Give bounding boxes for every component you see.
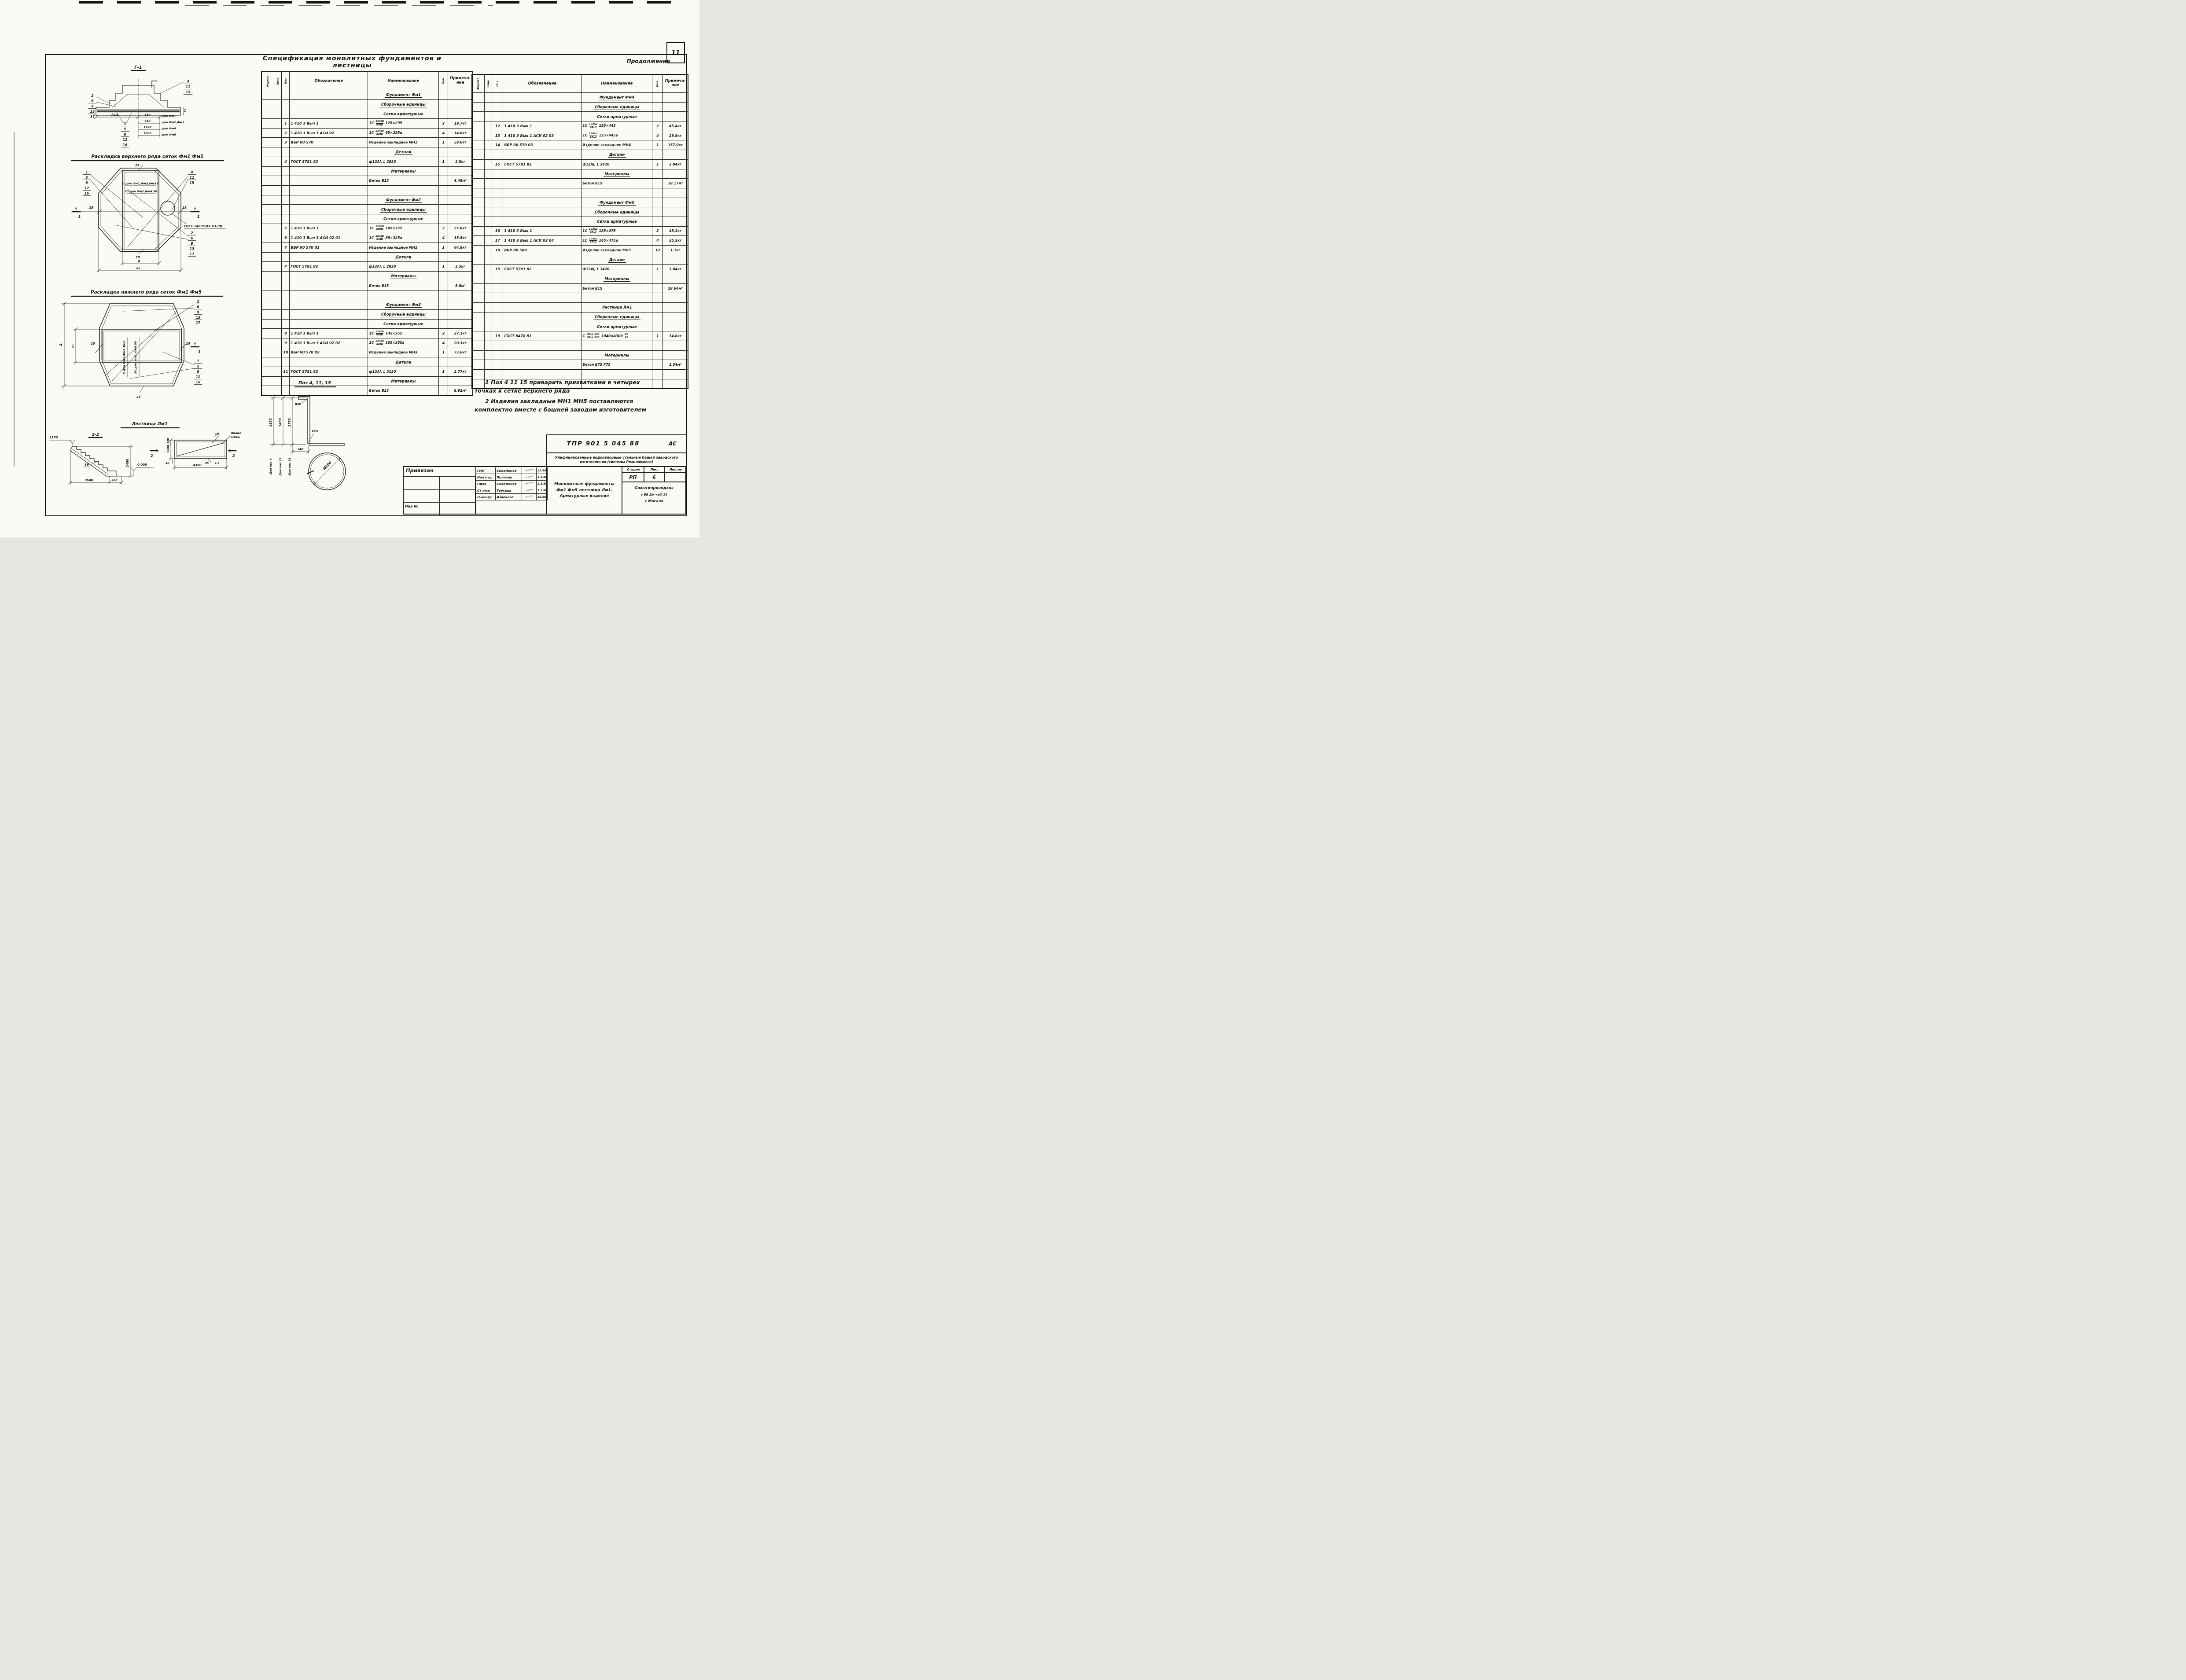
spec-cell <box>652 112 663 121</box>
spec-cell <box>472 274 484 284</box>
spec-cell <box>439 300 448 310</box>
spec-cell <box>484 265 492 274</box>
spec-cell <box>484 169 492 179</box>
bar-length-for: Для поз 15 <box>288 457 291 476</box>
spec-cell <box>274 329 282 338</box>
col-header-zona: Зона <box>484 74 492 93</box>
spec-cell <box>282 185 290 195</box>
signature-row: Нач отд Поляков 2.2.88 <box>476 474 548 481</box>
drawing-line <box>131 467 136 471</box>
spec-cell <box>261 205 274 214</box>
spec-cell <box>652 93 663 103</box>
dim-bottom: 25 <box>136 256 140 259</box>
spec-cell <box>484 350 492 360</box>
drawing-title: Раскладка нижнего ряда сеток Фм1 Фм5 <box>91 290 202 295</box>
sig-date: 1.2.88 <box>537 487 548 494</box>
bottom-mesh-drawing: Раскладка нижнего ряда сеток Фм1 Фм5 269… <box>53 287 238 419</box>
bar-length: 1750 <box>288 418 291 427</box>
spec-cell: 4 <box>652 236 663 246</box>
spec-cell <box>290 90 368 100</box>
spec-cell <box>274 300 282 310</box>
spec-cell <box>261 99 274 109</box>
spec-cell <box>274 243 282 253</box>
col-header-naimenovanie: Наименование <box>368 72 439 90</box>
sheets-label: Листов <box>665 468 687 471</box>
fraction: 12АШ6АШ <box>589 132 597 139</box>
spec-cell: 1 <box>652 159 663 169</box>
spec-cell <box>261 262 274 272</box>
spec-cell: Сборочные единицы <box>581 102 652 112</box>
bar-length: 1150 <box>269 418 272 427</box>
dim-plan-width: 4390 <box>193 463 202 467</box>
spec-row: Бетон В155.8м³ <box>261 281 473 290</box>
spec-cell <box>439 272 448 281</box>
spec-cell: ф12АI, L 2820 <box>368 262 439 272</box>
spec-cell <box>439 386 448 396</box>
revision-grid <box>403 476 475 515</box>
dim-a: а <box>138 259 140 263</box>
spec-cell <box>503 283 581 293</box>
callout-stack-left: 2691317 <box>88 94 96 119</box>
spec-cell <box>663 312 688 322</box>
spec-cell <box>484 312 492 322</box>
spec-section-row: Материалы <box>472 169 688 179</box>
spec-cell <box>261 281 274 290</box>
dim-left: 25 <box>91 342 95 346</box>
fraction: 12АШ6АШ <box>375 225 384 232</box>
spec-row: 131 410 3 Вып 1 АСИ 02 031С 12АШ6АШ 125×… <box>472 131 688 140</box>
spec-cell <box>663 150 688 160</box>
col-header-label: Поз <box>496 81 499 87</box>
spec-cell <box>484 236 492 246</box>
spec-cell: 2.5кг <box>448 262 473 272</box>
spec-cell <box>503 198 581 207</box>
spec-cell <box>290 357 368 367</box>
spec-cell <box>290 309 368 319</box>
spec-header: ФорматЗонаПозОбозначениеНаименованиеКолП… <box>472 74 688 93</box>
spec-cell <box>503 341 581 350</box>
section-title: Лестница Лм1 <box>600 305 633 310</box>
spec-cell <box>439 309 448 319</box>
drawing-line <box>458 477 458 515</box>
spec-cell <box>663 188 688 198</box>
spec-cell: 1 <box>652 265 663 274</box>
spec-row: Бетон В154.48м³ <box>261 176 473 186</box>
spec-cell <box>261 90 274 100</box>
col-header-zona: Зона <box>274 72 282 90</box>
sig-date: 12.88 <box>537 494 548 500</box>
spec-cell <box>290 195 368 205</box>
spec-cell <box>368 290 439 300</box>
spec-cell <box>448 166 473 176</box>
spec-cell <box>274 290 282 300</box>
spec-row: 121 410 3 Вып 11С 12АШ6АШ 185×445245.4кг <box>472 121 688 131</box>
fraction-den: 6АШ <box>589 240 597 243</box>
doc-number-cell: ТПР 901 5 045 88 АС <box>547 434 686 453</box>
drawing-line <box>526 469 533 471</box>
spec-cell: Детали <box>368 147 439 157</box>
spec-cell <box>274 272 282 281</box>
spec-cell <box>652 360 663 370</box>
spec-cell <box>274 348 282 357</box>
spec-cell: 15.5кг <box>448 233 473 243</box>
spec-cell: 1 410 3 Вып 1 АСИ 02 01 <box>290 233 368 243</box>
callout-number: 8 <box>124 132 126 136</box>
spec-cell <box>484 341 492 350</box>
fold-line-label-1: Линия <box>230 431 241 435</box>
dim-top: 25 <box>135 164 140 167</box>
spec-row: 61 410 3 Вып 1 АСИ 02 011С 12АШ6АШ 85×32… <box>261 233 473 243</box>
spec-cell: 1 410 3 Вып 1 <box>290 329 368 338</box>
spec-cell <box>663 350 688 360</box>
spec-section-row: Сборочные единицы <box>261 309 473 319</box>
spec-cell: 1 410 3 Вып 1 <box>290 119 368 129</box>
spec-cell <box>274 338 282 348</box>
section-title: Сетки арматурные <box>382 322 425 326</box>
spec-cell: 1 410 3 Вып 1 <box>503 226 581 236</box>
spec-cell <box>261 367 274 376</box>
fraction-den: 6АШ <box>589 136 597 139</box>
mesh-annotation: 0 для Фм1,Фм3,Фм5 0 <box>122 182 159 185</box>
spec-cell: Фундамент Фм2 <box>368 195 439 205</box>
spec-cell <box>503 112 581 121</box>
col-header-poz: Поз <box>282 72 290 90</box>
fraction-den: 6АШ <box>376 133 383 136</box>
spec-cell <box>503 350 581 360</box>
spec-cell <box>448 205 473 214</box>
signature-scribble <box>522 494 537 500</box>
spec-cell <box>439 185 448 195</box>
callout-stack-bottom: 1581216 <box>121 122 129 147</box>
fold-line-label-2: сгиба <box>231 435 240 439</box>
spec-cell <box>503 217 581 226</box>
spec-cell: Сборочные единицы <box>581 312 652 322</box>
spec-cell: 2 <box>439 224 448 233</box>
spec-cell <box>472 217 484 226</box>
sig-name: Трусова <box>496 487 522 494</box>
spec-row: 81 410 3 Вып 11С 12АШ6АШ 145×355227.1кг <box>261 329 473 338</box>
spec-section-row: Материалы <box>261 166 473 176</box>
sheet-label: Лист <box>644 468 665 471</box>
spec-cell <box>439 376 448 386</box>
spec-cell: Детали <box>368 252 439 262</box>
callout-number: 15 <box>186 90 190 94</box>
sig-date: 2.2.88 <box>537 481 548 487</box>
spec-cell <box>290 109 368 119</box>
spec-cell <box>652 293 663 303</box>
sig-name: Извекова <box>496 494 522 500</box>
spec-cell: 1 410 3 Вып 1 <box>503 121 581 131</box>
spec-cell <box>448 214 473 224</box>
spec-cell <box>439 252 448 262</box>
spec-row: 4ГОСТ 5781 82ф12АI, L 282012.5кг <box>261 262 473 272</box>
spec-cell: ГОСТ 5781 82 <box>290 157 368 166</box>
spec-cell: 3 <box>282 138 290 147</box>
spec-cell <box>448 290 473 300</box>
spec-table-left: ФорматЗонаПозОбозначениеНаименованиеКолП… <box>261 71 473 396</box>
fraction-den: 6АШ <box>376 238 383 241</box>
spec-cell: ВБР 00 570 02 <box>290 348 368 357</box>
spec-section-row: Сборочные единицы <box>261 205 473 214</box>
spec-cell: 1 <box>439 157 448 166</box>
spec-cell <box>503 360 581 370</box>
col-header-label: Зона <box>487 80 490 88</box>
spec-cell <box>282 214 290 224</box>
drawing-line <box>525 468 533 473</box>
spec-cell <box>484 102 492 112</box>
spec-section-row: Детали <box>472 255 688 265</box>
spec-cell <box>663 198 688 207</box>
dim-run: 3640 <box>85 478 93 482</box>
spec-row: 171 410 3 Вып 1 АСИ 02 041С 12АШ6АШ 145×… <box>472 236 688 246</box>
spec-cell: 45.4кг <box>663 121 688 131</box>
spec-cell <box>448 99 473 109</box>
spec-cell <box>448 90 473 100</box>
col-header-label: Формат <box>266 75 269 87</box>
spec-cell: Бетон В15 <box>368 386 439 396</box>
spec-cell: Изделие закладное МН1 <box>368 138 439 147</box>
spec-cell <box>484 369 492 379</box>
spec-cell: 1 <box>652 331 663 341</box>
spec-cell: Материалы <box>581 350 652 360</box>
dim-toe: 260 <box>111 478 118 482</box>
callout-number: 9 <box>191 242 193 246</box>
spec-cell <box>472 369 484 379</box>
spec-cell <box>492 369 503 379</box>
spec-cell: 11 <box>282 367 290 376</box>
continuation-label: Продолжение <box>620 58 677 64</box>
fraction-den: 5ВрI 100 <box>587 336 600 339</box>
spec-cell <box>492 255 503 265</box>
spec-cell: Детали <box>581 255 652 265</box>
fraction-den: 6АШ <box>376 343 383 346</box>
drawing-line <box>525 495 533 499</box>
spec-cell: 1 <box>439 262 448 272</box>
spec-cell <box>484 198 492 207</box>
spec-cell: Сетки арматурные <box>368 109 439 119</box>
spec-cell: 2 <box>439 329 448 338</box>
spec-cell <box>439 357 448 367</box>
spec-cell <box>472 131 484 140</box>
spec-cell <box>472 198 484 207</box>
drawing-line <box>99 168 181 252</box>
spec-cell <box>282 195 290 205</box>
spec-cell <box>492 150 503 160</box>
signature-row: Н.контр Извекова 12.88 <box>476 494 548 500</box>
spec-cell <box>274 166 282 176</box>
spec-cell <box>663 102 688 112</box>
spec-cell: Изделие закладное МН2 <box>368 243 439 253</box>
spec-cell: 10 <box>282 348 290 357</box>
drawing-sheet: 11 Спецификация монолитных фундаментов и… <box>0 0 699 537</box>
spec-cell <box>472 255 484 265</box>
col-header-label: Примеча- ние <box>665 79 686 88</box>
spec-cell <box>261 157 274 166</box>
spec-cell <box>261 300 274 310</box>
spec-section-row: Сборочные единицы <box>472 207 688 217</box>
col-header-label: Кол <box>442 78 445 84</box>
section-title: Детали <box>394 360 413 365</box>
bar-length-for: Для поз 11 <box>279 457 282 476</box>
dim-height: 2450 <box>126 459 129 467</box>
ladder-callout: 19 <box>85 463 89 467</box>
drawing-line <box>403 489 476 490</box>
spec-cell: Сетки арматурные <box>581 217 652 226</box>
col-header-label: Обозначение <box>315 79 343 84</box>
spec-cell <box>472 226 484 236</box>
drawing-title: Раскладка верхнего ряда сеток Фм1 Фм5 <box>91 154 203 159</box>
spec-section-row: Сборочные единицы <box>472 102 688 112</box>
spec-row <box>472 293 688 303</box>
spec-cell <box>652 169 663 179</box>
dim-table-for: для Фм2,Фм3 <box>161 121 184 124</box>
section-title: Материалы <box>604 353 631 358</box>
spec-cell: Сетки арматурные <box>368 214 439 224</box>
spec-cell: Лестница Лм1 <box>581 303 652 312</box>
spec-cell <box>282 147 290 157</box>
spec-cell <box>472 179 484 188</box>
section-title: Материалы <box>604 172 631 177</box>
page-number: 11 <box>671 49 680 56</box>
signature-row: Ст инж Трусова 1.2.88 <box>476 487 548 494</box>
spec-cell <box>290 166 368 176</box>
spec-cell <box>282 309 290 319</box>
spec-cell: 1С 12АШ6АШ 185×445 <box>581 121 652 131</box>
callout-number: 2 <box>91 94 93 98</box>
spec-cell <box>274 233 282 243</box>
spec-cell <box>261 176 274 186</box>
spec-cell <box>581 341 652 350</box>
spec-cell: Детали <box>581 150 652 160</box>
spec-cell <box>472 293 484 303</box>
spec-section-row: Фундамент Фм1 <box>261 90 473 100</box>
spec-cell: Сборочные единицы <box>368 205 439 214</box>
spec-cell <box>663 207 688 217</box>
spec-cell <box>261 233 274 243</box>
drawing-line <box>123 308 194 311</box>
spec-cell: ВБР 00 570 03 <box>503 140 581 150</box>
dim-right: 25 <box>182 206 187 210</box>
spec-cell <box>282 99 290 109</box>
spec-cell <box>290 147 368 157</box>
dim-table-for: для Фм4 <box>161 127 176 130</box>
dim-table-value: 830 <box>144 113 151 117</box>
section-title: Детали <box>394 150 413 155</box>
section-g1-drawing: Г-1 35 2691317 41115 1581216 А₁/2 830 дл… <box>86 62 213 153</box>
spec-cell: 12 <box>652 246 663 255</box>
fraction: 12АШ6АШ <box>375 120 384 126</box>
spec-cell <box>492 188 503 198</box>
spec-cell <box>439 205 448 214</box>
spec-cell <box>484 121 492 131</box>
stage-value: РП <box>622 472 644 482</box>
callout-number: 6 <box>197 305 199 309</box>
spec-cell: 2 <box>652 226 663 236</box>
spec-section-row: Фундамент Фм4 <box>472 93 688 103</box>
dim-table-for: для Фм5 <box>161 133 176 136</box>
spec-cell: 1С 12АШ6АШ 185×475 <box>581 226 652 236</box>
callout-number: 11 <box>190 176 194 180</box>
drawing-line <box>526 489 533 491</box>
sheet-header-cell: Лист <box>644 467 664 472</box>
spec-cell: ВБР 00 570 <box>290 138 368 147</box>
col-header-label: Кол <box>656 81 659 87</box>
scan-noise <box>185 5 493 6</box>
spec-cell: Сетки арматурные <box>581 322 652 331</box>
dim-plan-right: 25 <box>205 462 209 465</box>
dim-plan-height: 1300 <box>167 445 170 452</box>
spec-cell: 1С 12АШ6АШ 125×445а <box>581 131 652 140</box>
spec-cell <box>492 322 503 331</box>
spec-cell <box>290 214 368 224</box>
spec-cell <box>274 319 282 329</box>
spec-cell: 14.0кг <box>448 128 473 138</box>
spec-cell <box>492 179 503 188</box>
spec-cell: 19.7кг <box>448 119 473 129</box>
spec-cell <box>503 179 581 188</box>
spec-cell <box>282 90 290 100</box>
dim-cover: 35 <box>184 109 187 113</box>
drawing-line <box>96 97 110 104</box>
spec-cell <box>472 322 484 331</box>
section-title: Фундамент Фм3 <box>385 302 422 308</box>
spec-cell: 15 <box>492 265 503 274</box>
spec-row: 15ГОСТ 5781 82ф12АI, L 342013.04кг <box>472 159 688 169</box>
spec-cell <box>503 255 581 265</box>
spec-cell: Изделие закладное МН3 <box>368 348 439 357</box>
spec-cell: 25.0кг <box>448 224 473 233</box>
callout-number: 8 <box>197 370 199 374</box>
drawing-line <box>298 399 344 443</box>
spec-cell <box>663 255 688 265</box>
note-1: 1 Поз 4 11 15 приварить прихватками в че… <box>475 379 654 395</box>
col-header-format: Формат <box>472 74 484 93</box>
spec-row: 4ГОСТ 5781 82ф12АI, L 282012.5кг <box>261 157 473 166</box>
sig-role: Н.контр <box>476 494 496 500</box>
spec-section-row: Сборочные единицы <box>472 312 688 322</box>
spec-cell: Материалы <box>368 166 439 176</box>
callout-number: 13 <box>90 110 95 114</box>
drawing-line <box>298 397 344 446</box>
callout-stack-left: 1581216 <box>83 170 91 196</box>
spec-cell: Детали <box>368 357 439 367</box>
spec-cell: 1С 12АШ6АШ 125×295 <box>368 119 439 129</box>
drawing-line <box>114 225 188 239</box>
spec-cell <box>448 109 473 119</box>
drawing-line <box>177 443 224 456</box>
drawing-title: Поз 4, 11, 15 <box>298 381 331 386</box>
drawing-line <box>126 113 132 123</box>
spec-cell <box>492 360 503 370</box>
drawing-line <box>90 461 98 465</box>
section-title: Материалы <box>390 274 417 279</box>
spec-cell: С 5ВрI 1005ВрI 100 1040×4300 5020 <box>581 331 652 341</box>
drawing-line <box>526 482 533 485</box>
signature-scribble <box>522 467 537 474</box>
page-edge-shadow <box>14 132 15 467</box>
spec-cell <box>652 207 663 217</box>
callout-number: 13 <box>190 247 194 251</box>
spec-cell <box>472 207 484 217</box>
spec-header-row: ФорматЗонаПозОбозначениеНаименованиеКолП… <box>261 72 473 90</box>
spec-cell <box>503 93 581 103</box>
section-label: 2-2 <box>92 433 99 437</box>
stage-label: Стадия <box>622 468 644 471</box>
spec-cell <box>274 252 282 262</box>
dim-offset: 140 <box>297 448 304 451</box>
callout-stack-right-bottom: 2691317 <box>188 231 196 257</box>
spec-cell: 1 410 3 Вып 1 АСИ 02 02 <box>290 338 368 348</box>
